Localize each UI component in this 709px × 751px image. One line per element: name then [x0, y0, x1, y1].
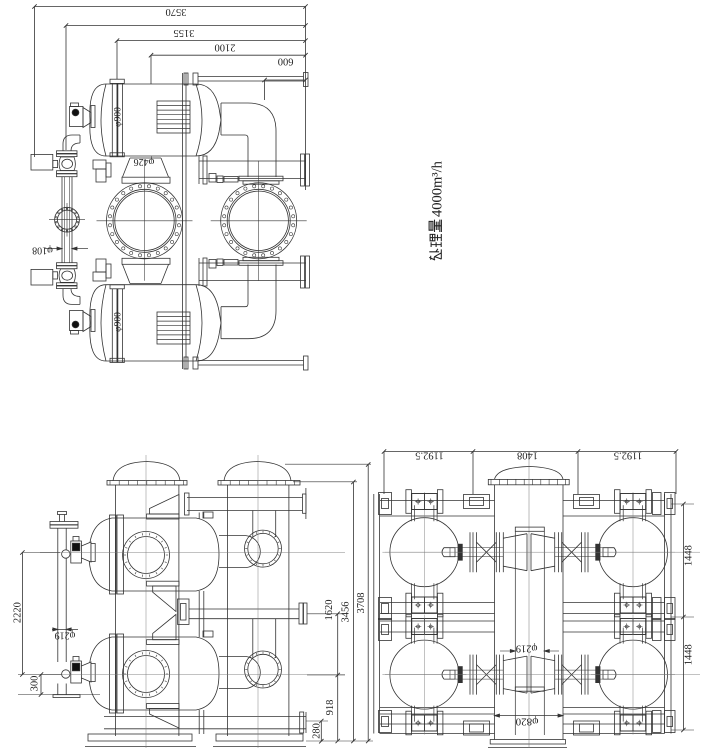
svg-text:φ820: φ820	[515, 716, 538, 728]
svg-text:600: 600	[278, 56, 294, 67]
svg-text:φ108: φ108	[32, 245, 53, 256]
svg-text:3456: 3456	[341, 602, 352, 623]
svg-text:2100: 2100	[215, 42, 236, 53]
svg-text:1620: 1620	[324, 600, 335, 621]
svg-text:1448: 1448	[684, 644, 695, 665]
svg-text:2220: 2220	[13, 602, 24, 623]
svg-text:φ219: φ219	[55, 630, 76, 641]
svg-text:1192.5: 1192.5	[614, 450, 643, 461]
svg-text:918: 918	[325, 700, 336, 716]
svg-text:φ900: φ900	[114, 312, 124, 332]
svg-text:1408: 1408	[517, 450, 538, 461]
svg-text:4000m³/h: 4000m³/h	[430, 160, 446, 217]
svg-text:3155: 3155	[174, 27, 195, 38]
svg-text:1192.5: 1192.5	[415, 450, 444, 461]
svg-text:1448: 1448	[684, 545, 695, 566]
svg-text:280: 280	[312, 723, 323, 739]
svg-text:3708: 3708	[356, 593, 367, 614]
svg-text:3570: 3570	[166, 6, 187, 17]
svg-text:300: 300	[30, 676, 41, 692]
svg-text:φ219: φ219	[516, 643, 538, 654]
svg-text:φ426: φ426	[134, 156, 155, 167]
svg-text:φ900: φ900	[114, 107, 124, 127]
